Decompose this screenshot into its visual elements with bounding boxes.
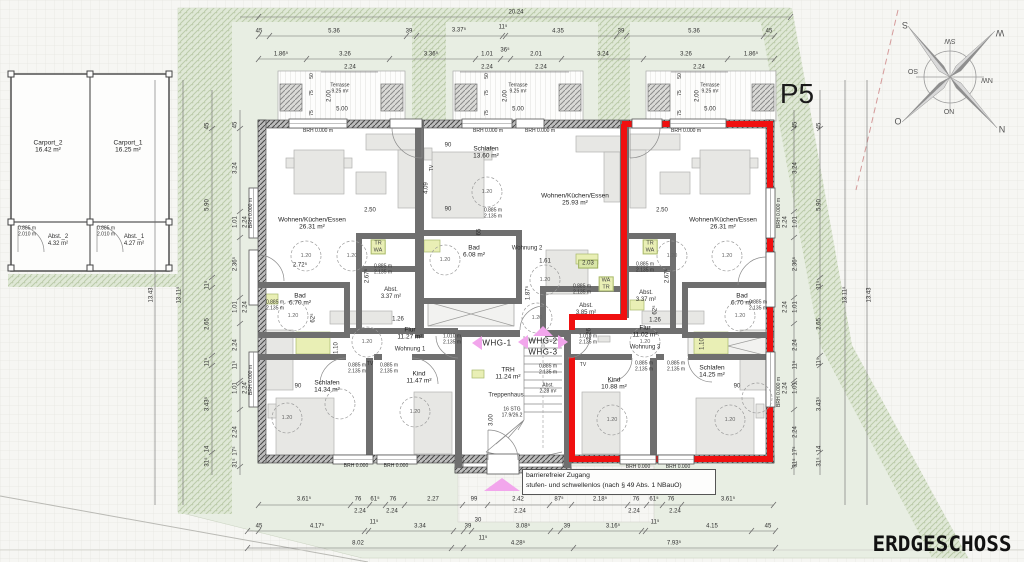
compass-label-nw: NW (981, 75, 993, 83)
dim: 4.28⁵ (511, 541, 525, 548)
room-w1-kind: Kind11.47 m² (406, 371, 431, 386)
dim: 45 (817, 123, 824, 130)
dim: 2.24 (233, 339, 240, 351)
dim: 4.35 (552, 29, 564, 36)
unit-label-w3: Wohnung 3 (630, 345, 661, 352)
dim: 2.36⁵ (793, 257, 800, 271)
terrace-dim: 50 (485, 73, 491, 79)
dim: 11⁵ (793, 361, 800, 370)
dim: 11⁵ (817, 358, 824, 367)
dim: 4.17⁵ (310, 524, 324, 531)
dim: 2.24 (354, 509, 366, 516)
dim: 45 (766, 29, 773, 36)
door-label: 0.885 m2.135 m (348, 363, 366, 375)
door-width-90: 90 (295, 384, 302, 391)
dim: 2.24 (243, 216, 250, 228)
dim: 76 (390, 497, 397, 504)
circle-dim: 1.20 (667, 253, 678, 259)
circle-dim: 1.20 (735, 313, 746, 319)
dim: 45 (765, 524, 772, 531)
dim: 2.42 (512, 497, 524, 504)
room-w3-kind: Kind10.88 m² (601, 377, 627, 392)
dim: 87⁵ (554, 497, 563, 504)
dim: 1.10 (334, 342, 341, 354)
dim-total: 13.11⁵ (177, 286, 184, 303)
circle-dim: 1.20 (410, 409, 421, 415)
dim: 11⁵ (205, 281, 212, 290)
dim: 45 (256, 29, 263, 36)
dim-total: 13.11⁵ (843, 286, 850, 303)
room-w1-schlafen: Schlafen14.34 m² (314, 380, 340, 395)
brh-label: BRH 0.000 m (249, 365, 255, 395)
door-width-90: 90 (445, 207, 452, 214)
wa-tr-tag: WATR (599, 276, 614, 291)
unit-label-w1: Wohnung 1 (395, 347, 426, 354)
terrace-dim: 5.00 (704, 107, 716, 114)
compass-label-o: O (894, 116, 901, 126)
dim: 2.36⁵ (233, 257, 240, 271)
hatch-strip-mid1 (412, 8, 446, 120)
brh-label: BRH 0.000 (626, 465, 650, 471)
room-w3-abst: Abst.3.37 m² (636, 290, 656, 304)
dim: 2.67⁵ (665, 269, 672, 283)
dim: 1.01 (793, 301, 800, 313)
dim: 17⁵ (233, 446, 240, 455)
terrace-dim: 2.00 (503, 90, 510, 102)
dim: 11⁵ (651, 520, 660, 527)
dim: 3.37⁵ (452, 28, 466, 35)
circle-dim: 1.20 (607, 417, 618, 423)
circle-dim: 1.20 (540, 277, 551, 283)
dim: 3.26 (339, 52, 351, 59)
dim: 45 (205, 123, 212, 130)
dim: 1.87⁵ (526, 286, 533, 300)
dim: 39 (618, 29, 625, 36)
dim: 1.10 (700, 338, 707, 350)
dim: 3.26 (680, 52, 692, 59)
terrace-dim: 2.00 (327, 90, 334, 102)
carport-structure (8, 71, 172, 271)
whg1-label: WHG-1 (482, 338, 511, 347)
floor-title: ERDGESCHOSS (872, 532, 1011, 556)
door-label: 0.885 m2.135 m (380, 363, 398, 375)
dim: 3.24 (597, 52, 609, 59)
dim: 5.90 (205, 199, 212, 211)
door-label: 0.885 m2.135 m (667, 361, 685, 373)
dim: 4.15 (706, 524, 718, 531)
dim: 3.43⁵ (205, 397, 212, 411)
dim: 2.24 (783, 301, 790, 313)
terrace-dim: 75 (310, 90, 316, 96)
whg2-label: WHG-2 (528, 336, 557, 345)
dim: 3.43⁵ (817, 397, 824, 411)
circle-dim: 1.20 (282, 415, 293, 421)
brh-label: BRH 0.000 (666, 465, 690, 471)
stair-steps-label: 16 STG17.9/26.2 (502, 407, 523, 419)
dim: 1.01 (233, 301, 240, 313)
dim: 11⁵ (479, 536, 488, 543)
room-w1-flur: Flur11.27 m² (397, 327, 422, 342)
compass-label-s: S (902, 20, 908, 30)
dim: 2.18⁵ (593, 497, 607, 504)
dim: 99 (471, 497, 478, 504)
dim: 3.24 (793, 162, 800, 174)
circle-dim: 1.20 (362, 339, 373, 345)
terrace-dim: 50 (310, 73, 316, 79)
terrace-dim: 75 (485, 90, 491, 96)
plan-label-p5: P5 (780, 78, 814, 110)
dim: 39 (564, 524, 571, 531)
brh-label: BRH 0.000 m (525, 129, 555, 135)
dim: 11⁵ (233, 361, 240, 370)
whg3-label: WHG-3 (528, 347, 557, 356)
dim: 5.36 (328, 29, 340, 36)
dim: 5.36 (688, 29, 700, 36)
brh-label: BRH 0.000 (384, 464, 408, 470)
dim: 2.24 (793, 339, 800, 351)
dim: 3.34 (414, 524, 426, 531)
room-w2-abst: Abst.3.85 m² (576, 303, 596, 317)
compass-label-sw: SW (944, 36, 955, 44)
dim: 11⁵ (499, 25, 508, 32)
dim: 1.86⁵ (744, 52, 758, 59)
dim: 1.01 (481, 52, 493, 59)
dim: 3.24 (233, 162, 240, 174)
dim: 2.24 (628, 509, 640, 516)
tv-label: TV (367, 362, 373, 368)
circle-dim: 1.20 (640, 339, 651, 345)
terrace-dim: 2.00 (695, 90, 702, 102)
terrace-dim: 75 (485, 110, 491, 116)
dim: 17⁵ (793, 446, 800, 455)
dim: 2.65 (817, 318, 824, 330)
room-w3-flur: Flur11.02 m² (632, 325, 657, 340)
door-label-wide: 1.010 m2.135 m (443, 334, 461, 346)
carport-door1-label: 0.885 m2.010 m (97, 226, 115, 238)
dim: 2.01 (530, 52, 542, 59)
room-trh: TRH11.24 m² (495, 367, 520, 382)
dim: 2.24 (669, 509, 681, 516)
carport-2-label: Carport_216.42 m² (34, 140, 63, 155)
terrace-dim: 75 (310, 110, 316, 116)
dim: 1.26 (649, 318, 661, 325)
circle-dim: 1.20 (482, 189, 493, 195)
circle-dim: 1.20 (722, 253, 733, 259)
dim: 62⁵ (653, 305, 660, 314)
room-w2-living: Wohnen/Küchen/Essen25.93 m² (541, 193, 609, 208)
terrace-dim: 75 (678, 110, 684, 116)
brh-label: BRH 0.000 m (473, 129, 503, 135)
door-label: 0.885 m2.135 m (573, 284, 591, 296)
brh-label: BRH 0.000 m (303, 129, 333, 135)
note-line1: barrierefreier Zugang (526, 471, 712, 481)
floor-plan-canvas: P5 ERDGESCHOSS barrierefreier Zugang stu… (0, 0, 1024, 562)
dim: 3.61⁵ (297, 497, 311, 504)
terrace-dim: 5.00 (512, 107, 524, 114)
dim: 1.61 (539, 259, 551, 266)
dim: 1.01 (793, 382, 800, 394)
tr-wa-tag: TRWA (643, 239, 658, 254)
hatch-strip-left (178, 8, 232, 514)
room-w3-schlafen: Schlafen14.25 m² (699, 365, 725, 380)
dim: 3.08⁵ (516, 524, 530, 531)
dim: 11⁵ (817, 281, 824, 290)
dim: 36⁵ (500, 48, 509, 55)
terrace-dim: 5.00 (336, 107, 348, 114)
compass-label-n: N (999, 124, 1006, 134)
carport-abst2-label: Abst._24.32 m² (48, 234, 68, 248)
dim: 2.24 (514, 509, 526, 516)
terrace2-label: Terrasse9.25 m² (508, 83, 527, 95)
compass-label-w: W (996, 28, 1005, 38)
dim: 1.01 (793, 216, 800, 228)
compass-label-no: NO (944, 106, 955, 114)
dim: 7.93⁵ (667, 541, 681, 548)
door-width-90: 90 (445, 143, 452, 150)
dim: 2.65 (205, 318, 212, 330)
carport-door2-label: 0.885 m2.010 m (18, 226, 36, 238)
dim: 2.24 (783, 216, 790, 228)
dim: 2.24 (783, 382, 790, 394)
dim: 2.24 (481, 65, 493, 72)
dim: 45 (793, 122, 800, 129)
tr-wa-tag: TRWA (371, 239, 386, 254)
circle-dim: 1.20 (301, 253, 312, 259)
dim: 30 (475, 518, 482, 525)
door-label: 0.885 m2.135 m (539, 364, 557, 376)
door-label: 0.885 m2.135 m (636, 262, 654, 274)
dim: 31⁵ (233, 458, 240, 467)
dim: 2.24 (535, 65, 547, 72)
door-width-90: 90 (734, 384, 741, 391)
dim-total: 13.43 (867, 287, 874, 302)
dim: 3.61⁵ (721, 497, 735, 504)
dim: 2.24 (793, 426, 800, 438)
dim: 2.27 (427, 497, 439, 504)
terrace-dim: 50 (678, 73, 684, 79)
terrace-dim: 75 (678, 90, 684, 96)
door-label: 0.885 m2.135 m (266, 300, 284, 312)
dim: 2.24 (243, 382, 250, 394)
compass-label-so: SO (908, 66, 918, 74)
door-label: 0.885 m2.135 m (749, 300, 767, 312)
stair-abst-label: Abst.2.28 m² (540, 383, 557, 395)
dim: 62⁵ (311, 313, 318, 322)
room-w2-bad: Bad6.08 m² (463, 245, 485, 260)
dim: 1.26 (587, 328, 594, 340)
unit-label-w2: Wohnung 2 (512, 246, 543, 253)
circle-dim: 1.20 (725, 417, 736, 423)
dim: 39 (465, 524, 472, 531)
dim: 2.50 (656, 208, 668, 215)
room-w2-schlafen: Schlafen13.60 m² (473, 146, 499, 161)
dim: 1.01 (233, 382, 240, 394)
dim-total: 20.24 (508, 10, 523, 17)
dim: 2.50 (364, 208, 376, 215)
tv-label: TV (580, 363, 586, 369)
dim: 76 (668, 497, 675, 504)
dim: 31⁵ (793, 458, 800, 467)
dim: 1.86⁵ (274, 52, 288, 59)
carport-1-label: Carport_116.25 m² (114, 140, 143, 155)
dim: 76 (355, 497, 362, 504)
dim: 2.24 (243, 301, 250, 313)
dim: 4.09 (424, 182, 431, 194)
room-w1-bad: Bad6.70 m² (289, 293, 311, 308)
dim: 14 (817, 446, 824, 453)
brh-label: BRH 0.000 (344, 464, 368, 470)
room-treppenhaus: Treppenhaus (488, 393, 523, 400)
dim: 8.02 (352, 541, 364, 548)
circle-dim: 1.20 (288, 313, 299, 319)
dim: 61⁵ (370, 497, 379, 504)
dim: 3.16⁵ (606, 524, 620, 531)
note-line2: stufen- und schwellenlos (nach § 49 Abs.… (526, 481, 712, 491)
brh-label: BRH 0.000 m (249, 198, 255, 228)
dim-total: 13.43 (149, 287, 156, 302)
dim: 65 (477, 229, 484, 236)
room-w1-abst: Abst.3.37 m² (381, 287, 401, 301)
dim: 61⁵ (649, 497, 658, 504)
dim: 1.01 (233, 216, 240, 228)
circle-dim: 1.20 (440, 257, 451, 263)
terrace3-label: Terrasse9.25 m² (700, 83, 719, 95)
dim: 45 (233, 122, 240, 129)
dim: 2.24 (344, 65, 356, 72)
dim: 76 (633, 497, 640, 504)
hatch-strip-carport (8, 274, 178, 287)
dim: 1.26 (392, 317, 404, 324)
tv-label: TV (430, 165, 436, 171)
dim: 2.72⁵ (293, 263, 307, 270)
dim: 2.24 (233, 426, 240, 438)
accessibility-note: barrierefreier Zugang stufen- und schwel… (522, 469, 716, 495)
dim: 5.90 (817, 199, 824, 211)
hatch-strip-mid2 (598, 8, 630, 120)
room-w3-living: Wohnen/Küchen/Essen26.31 m² (689, 217, 757, 232)
dim: 2.24 (693, 65, 705, 72)
dim: 3.00 (489, 414, 496, 426)
dim: 2.24 (386, 509, 398, 516)
dim: 31⁵ (817, 457, 824, 466)
door-label: 0.885 m2.135 m (484, 208, 502, 220)
circle-dim: 1.20 (347, 253, 358, 259)
carport-abst1-label: Abst._14.27 m² (124, 234, 144, 248)
room-w1-living: Wohnen/Küchen/Essen26.31 m² (278, 217, 346, 232)
dim: 11⁵ (205, 358, 212, 367)
dim: 3.36⁵ (424, 52, 438, 59)
dim: 31⁵ (205, 457, 212, 466)
dim: 45 (256, 524, 263, 531)
dim: 11⁵ (370, 520, 379, 527)
dim: 2.67⁵ (365, 269, 372, 283)
elevation-marker: 2.03 (578, 260, 598, 269)
door-label: 0.885 m2.135 m (374, 264, 392, 276)
brh-label: BRH 0.000 m (671, 129, 701, 135)
dim: 39 (406, 29, 413, 36)
circle-dim: 1.20 (532, 315, 543, 321)
dim: 14 (205, 446, 212, 453)
door-label: 0.885 m2.135 m (635, 361, 653, 373)
